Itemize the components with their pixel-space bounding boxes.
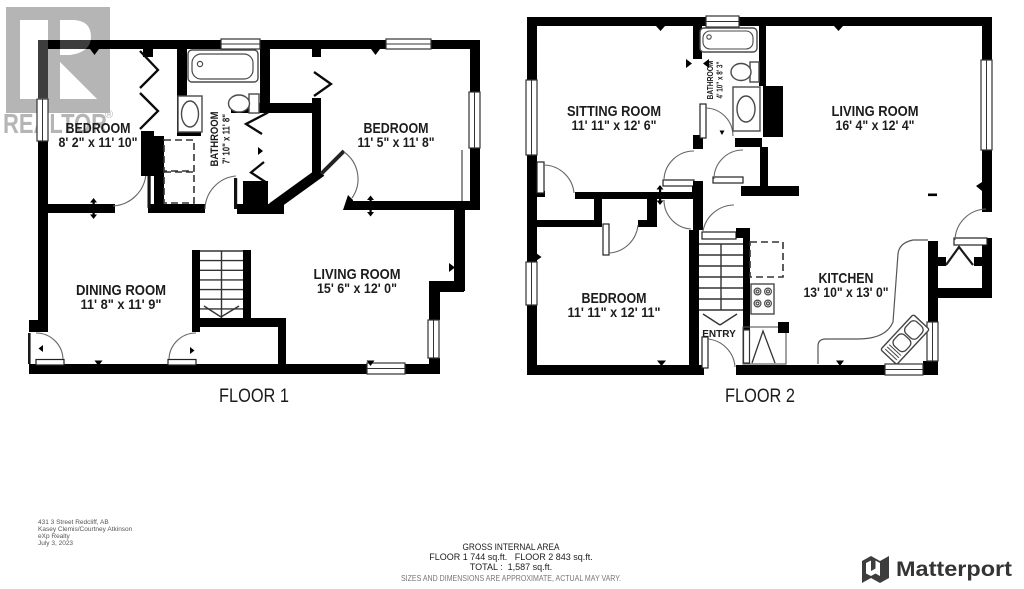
svg-text:11' 11" x 12' 11": 11' 11" x 12' 11" <box>568 304 661 320</box>
svg-text:July 3, 2023: July 3, 2023 <box>38 540 73 547</box>
svg-text:GROSS INTERNAL AREA: GROSS INTERNAL AREA <box>463 542 560 552</box>
svg-text:431 3 Street Redcliff, AB: 431 3 Street Redcliff, AB <box>38 519 109 526</box>
svg-text:FLOOR 2: FLOOR 2 <box>725 385 795 407</box>
svg-text:15' 6" x 12' 0": 15' 6" x 12' 0" <box>317 280 397 296</box>
svg-text:16' 4" x 12' 4": 16' 4" x 12' 4" <box>836 117 915 133</box>
svg-text:BATHROOM: BATHROOM <box>705 61 715 100</box>
svg-text:eXp Realty: eXp Realty <box>38 533 71 540</box>
svg-text:BATHROOM: BATHROOM <box>209 112 221 167</box>
svg-text:Kasey Clemis/Courtney Atkinson: Kasey Clemis/Courtney Atkinson <box>38 526 133 533</box>
svg-text:4' 10" x 8' 3": 4' 10" x 8' 3" <box>716 61 725 98</box>
svg-text:ENTRY: ENTRY <box>702 329 736 340</box>
svg-text:FLOOR 1 744 sq.ft. FLOOR 2 8: FLOOR 1 744 sq.ft. FLOOR 2 843 sq.ft. <box>429 552 593 562</box>
svg-text:11' 8" x 11' 9": 11' 8" x 11' 9" <box>81 296 162 312</box>
svg-text:7' 10" x 11' 8": 7' 10" x 11' 8" <box>222 114 233 164</box>
svg-text:11' 5" x 11' 8": 11' 5" x 11' 8" <box>358 134 435 150</box>
svg-text:SIZES AND DIMENSIONS ARE APPRO: SIZES AND DIMENSIONS ARE APPROXIMATE, AC… <box>401 574 621 583</box>
svg-text:13' 10" x 13' 0": 13' 10" x 13' 0" <box>804 284 889 300</box>
svg-text:Matterport: Matterport <box>896 558 1012 581</box>
svg-text:11' 11" x 12' 6": 11' 11" x 12' 6" <box>572 117 657 133</box>
svg-text:FLOOR 1: FLOOR 1 <box>219 385 289 407</box>
svg-text:TOTAL : 1,587 sq.ft.: TOTAL : 1,587 sq.ft. <box>470 562 552 572</box>
svg-text:8' 2" x 11' 10": 8' 2" x 11' 10" <box>59 134 138 150</box>
